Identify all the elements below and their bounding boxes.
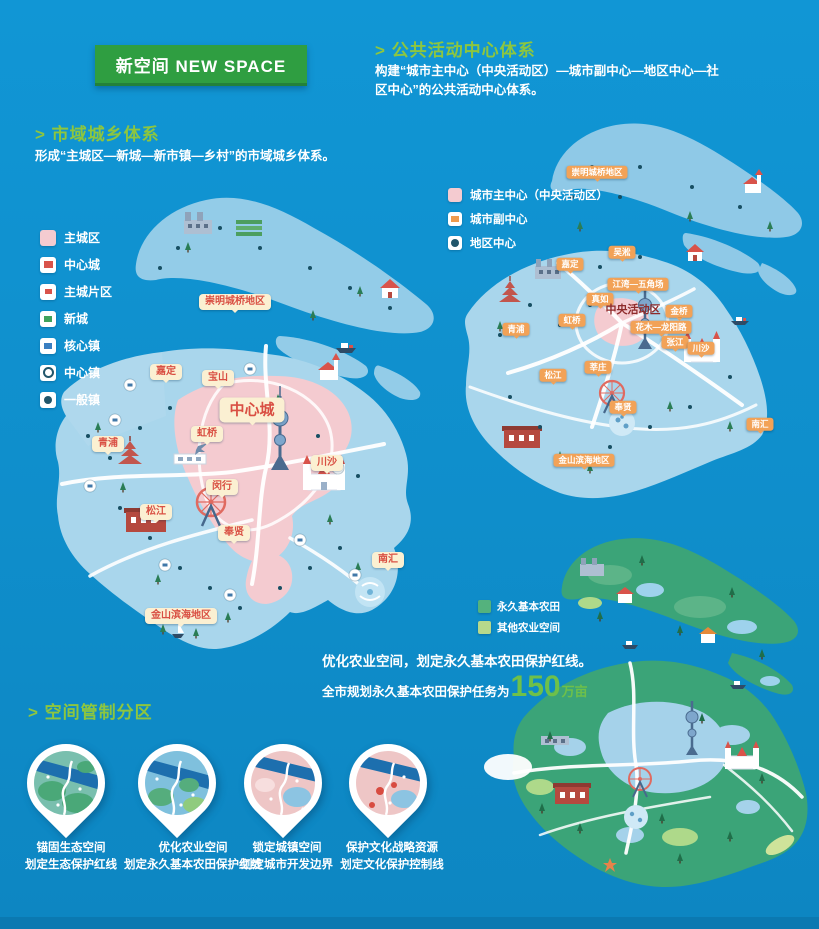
map-label-chuansha: 川沙 — [311, 455, 343, 471]
legend-item: 城市副中心 — [448, 207, 608, 231]
zone-pin-ecology: 锚固生态空间 划定生态保护红线 — [27, 744, 105, 822]
farm-note-line2: 全市规划永久基本农田保护任务为 150 万亩 — [322, 672, 588, 702]
map-label-jinqiao: 金桥 — [665, 305, 692, 318]
pin-minimap-ecology — [34, 751, 98, 815]
map-label-jiading: 嘉定 — [150, 364, 182, 380]
map-pin-icon — [11, 728, 121, 838]
heading-urban-rural: > 市域城乡体系 — [35, 120, 160, 145]
legend-swatch-city-sub-center — [448, 212, 462, 226]
map-label-hongqiao: 虹桥 — [191, 426, 223, 442]
dishui-lake — [624, 805, 648, 829]
map-pin-icon — [333, 728, 443, 838]
legend-item: 新城 — [40, 305, 112, 332]
pier-icon — [541, 736, 569, 745]
pin-minimap-urban — [251, 751, 315, 815]
zone-pin-subtitle: 划定文化保护控制线 — [307, 857, 477, 874]
zone-pin-agriculture: 优化农业空间 划定永久基本农田保护红线 — [138, 744, 216, 822]
boat-icon — [622, 641, 638, 649]
brick-building-icon — [553, 783, 591, 804]
map-label-chongming: 崇明城桥地区 — [199, 294, 271, 310]
infographic-new-space: 新空间 NEW SPACE > 公共活动中心体系 构建“城市主中心（中央活动区）… — [0, 0, 819, 929]
heading-public-centers: > 公共活动中心体系 — [375, 36, 536, 61]
map-label-minhang: 闵行 — [206, 479, 238, 495]
title-ribbon: 新空间 NEW SPACE — [95, 45, 307, 86]
map-label-hongqiao: 虹桥 — [558, 314, 585, 327]
legend-swatch-main-city-area — [40, 284, 56, 300]
farm-note-prefix: 全市规划永久基本农田保护任务为 — [322, 681, 510, 700]
map-label-nanhui: 南汇 — [372, 552, 404, 568]
map-label-wusong: 吴淞 — [608, 246, 635, 259]
zone-pin-culture: 保护文化战略资源 划定文化保护控制线 — [349, 744, 427, 822]
farm-target-number: 150 — [511, 672, 561, 702]
legend-swatch-general-town — [40, 392, 56, 408]
legend-swatch-main-city — [40, 230, 56, 246]
farm-target-unit: 万亩 — [562, 681, 588, 700]
zone-pin-caption: 保护文化战略资源 划定文化保护控制线 — [307, 840, 477, 873]
map-label-songjiang: 松江 — [539, 369, 566, 382]
map-label-qingpu: 青浦 — [502, 323, 529, 336]
brick-building-icon — [502, 426, 542, 448]
legend-swatch-new-city — [40, 311, 56, 327]
boat-icon — [336, 343, 356, 353]
map-label-songjiang: 松江 — [140, 504, 172, 520]
bottom-band — [0, 917, 819, 929]
map-label-jinshan: 金山滨海地区 — [145, 608, 217, 624]
legend-item: 中心城 — [40, 251, 112, 278]
map-label-caz: 中央活动区 — [606, 301, 661, 317]
legend-swatch-core-town — [40, 338, 56, 354]
map-label-chongming-chengqiao: 崇明城桥地区 — [566, 166, 627, 179]
heading-zoning: > 空间管制分区 — [28, 698, 153, 723]
legend-item: 地区中心 — [448, 231, 608, 255]
map-farmland-svg — [480, 535, 819, 890]
farm-note-line1: 优化农业空间，划定永久基本农田保护红线。 — [322, 650, 592, 670]
map-pin-icon — [228, 728, 338, 838]
legend-swatch-district-center — [448, 236, 462, 250]
legend-item: 一般镇 — [40, 386, 112, 413]
desc-urban-rural: 形成“主城区—新城—新市镇—乡村”的市域城乡体系。 — [35, 147, 415, 166]
map-label-baoshan: 宝山 — [202, 370, 234, 386]
map-label-central-city: 中心城 — [219, 398, 284, 423]
map-label-jiangwan-wujiaochang: 江湾—五角场 — [607, 278, 668, 291]
legend-public-centers: 城市主中心（中央活动区） 城市副中心 地区中心 — [448, 183, 608, 255]
title-ribbon-label: 新空间 NEW SPACE — [116, 52, 286, 77]
map-farmland — [480, 535, 819, 890]
legend-item: 永久基本农田 — [478, 596, 560, 617]
map-pin-icon — [122, 728, 232, 838]
zone-pin-title: 保护文化战略资源 — [307, 840, 477, 857]
legend-item: 主城片区 — [40, 278, 112, 305]
map-label-huamu-longyang: 花木—龙阳路 — [630, 321, 691, 334]
map-label-fengxian: 奉贤 — [609, 401, 636, 414]
desc-public-centers: 构建“城市主中心（中央活动区）—城市副中心—地区中心—社区中心”的公共活动中心体… — [375, 62, 725, 101]
map-label-chuansha: 川沙 — [687, 342, 714, 355]
map-public-centers: 崇明城桥地区 吴淞 嘉定 江湾—五角场 真如 虹桥 金桥 花木—龙阳路 张江 川… — [440, 105, 819, 565]
pin-minimap-culture — [356, 751, 420, 815]
legend-farmland: 永久基本农田 其他农业空间 — [478, 596, 560, 638]
legend-item: 核心镇 — [40, 332, 112, 359]
legend-item: 城市主中心（中央活动区） — [448, 183, 608, 207]
legend-swatch-other-agriculture — [478, 621, 491, 634]
pin-minimap-agriculture — [145, 751, 209, 815]
cloud-shape — [484, 754, 532, 780]
legend-item: 其他农业空间 — [478, 617, 560, 638]
zone-pin-urban: 锁定城镇空间 划定城市开发边界 — [244, 744, 322, 822]
legend-item: 主城区 — [40, 224, 112, 251]
map-label-jinshan-binhai: 金山滨海地区 — [553, 454, 614, 467]
legend-swatch-city-main-center — [448, 188, 462, 202]
map-label-fengxian: 奉贤 — [218, 525, 250, 541]
legend-swatch-central-city — [40, 257, 56, 273]
legend-swatch-central-town — [40, 365, 56, 381]
dishui-lake — [355, 577, 385, 607]
map-label-nanhui: 南汇 — [746, 418, 773, 431]
map-label-qingpu: 青浦 — [92, 436, 124, 452]
map-label-zhangjiang: 张江 — [661, 336, 688, 349]
legend-urban-rural: 主城区 中心城 主城片区 新城 核心镇 中心镇 一般镇 — [40, 224, 112, 413]
legend-item: 中心镇 — [40, 359, 112, 386]
map-label-xinzhuang: 莘庄 — [584, 361, 611, 374]
map-public-centers-svg — [440, 105, 819, 565]
map-label-jiading: 嘉定 — [556, 258, 583, 271]
legend-swatch-permanent-farmland — [478, 600, 491, 613]
farm-fields-icon — [236, 220, 262, 236]
